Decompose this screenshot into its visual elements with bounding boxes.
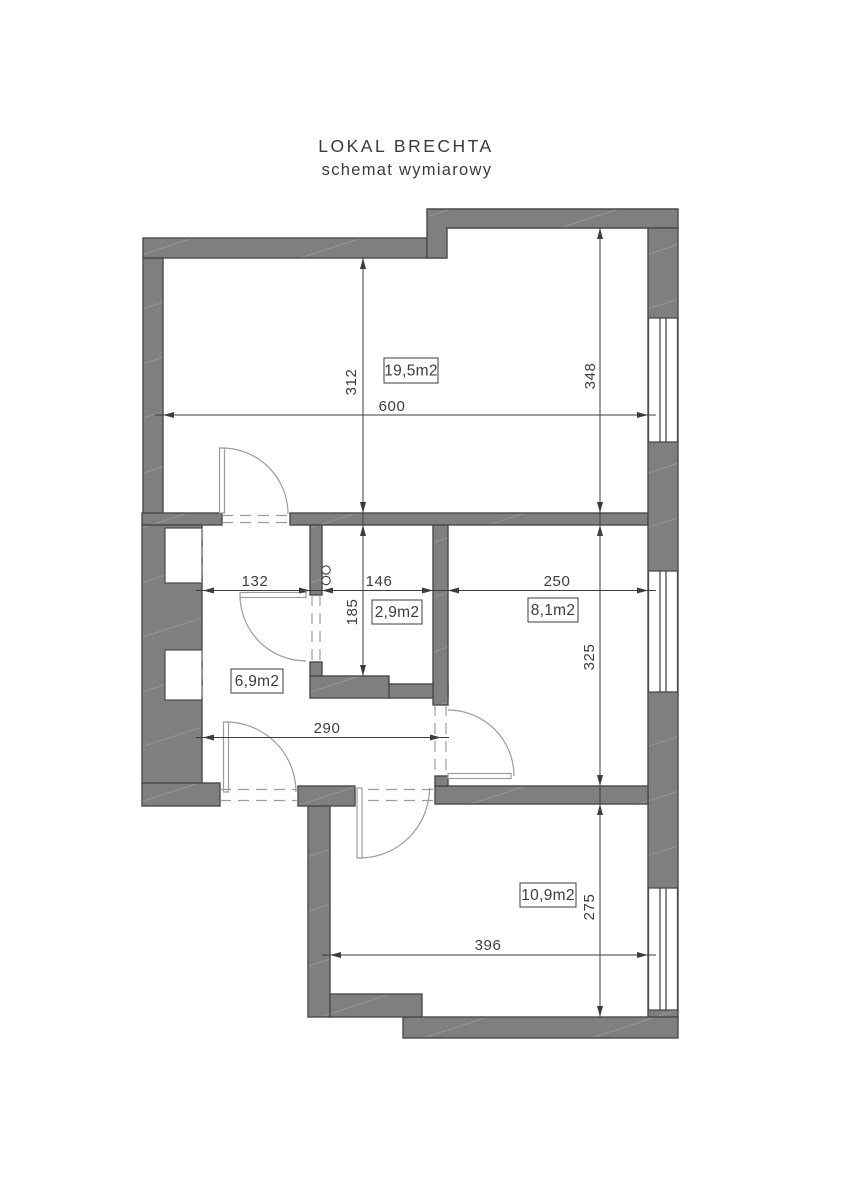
dim-label-275: 275 xyxy=(581,894,598,921)
dim-arrow xyxy=(360,665,366,676)
room-labels-group: 19,5m2 2,9m2 8,1m2 6,9m2 10,9m2 xyxy=(231,358,578,907)
dim-arrow xyxy=(360,525,366,536)
room-area-label-19-5: 19,5m2 xyxy=(384,363,438,380)
wall-segment xyxy=(290,513,648,525)
wall-segment xyxy=(142,783,220,806)
wall-segment xyxy=(143,258,163,513)
wall-segment xyxy=(310,525,322,595)
dim-arrow xyxy=(330,952,341,958)
riser-icon xyxy=(322,566,330,585)
openings-group xyxy=(203,516,447,801)
window xyxy=(649,888,678,1010)
dim-label-325: 325 xyxy=(581,644,598,671)
dim-label-396: 396 xyxy=(475,937,502,954)
room-area-badge: 2,9m2 xyxy=(372,600,422,624)
dim-arrow xyxy=(637,952,648,958)
title-line-2: schemat wymiarowy xyxy=(322,161,493,179)
wall-segment xyxy=(308,806,330,1017)
wall-segment xyxy=(298,786,355,806)
door-swing-arc xyxy=(448,710,514,776)
dim-label-185: 185 xyxy=(344,599,361,626)
dim-arrow xyxy=(430,735,441,741)
dimension-labels-group: 600 132 146 250 290 396 312 348 185 325 … xyxy=(242,363,599,954)
dim-arrow xyxy=(203,588,214,594)
dim-arrow xyxy=(360,502,366,513)
door xyxy=(220,448,289,514)
window xyxy=(649,318,678,442)
room-area-badge: 6,9m2 xyxy=(231,669,283,693)
title-line-1: LOKAL BRECHTA xyxy=(318,136,493,156)
dim-label-600: 600 xyxy=(379,398,406,415)
door-swing-arc xyxy=(360,788,430,858)
door xyxy=(448,710,514,779)
windows-group xyxy=(649,318,678,1010)
dim-label-312: 312 xyxy=(343,369,360,396)
dim-arrow xyxy=(360,258,366,269)
room-area-badge: 19,5m2 xyxy=(384,358,438,383)
floor-plan-svg: 600 132 146 250 290 396 312 348 185 325 … xyxy=(0,0,849,1200)
dim-arrow xyxy=(203,735,214,741)
room-area-label-8-1: 8,1m2 xyxy=(531,602,576,619)
dim-arrow xyxy=(597,1006,603,1017)
wall-niche xyxy=(165,528,202,583)
door-swing-arc xyxy=(222,448,288,514)
wall-segment xyxy=(142,513,222,525)
dim-arrow xyxy=(637,588,648,594)
dim-label-250: 250 xyxy=(544,573,571,590)
wall-segment xyxy=(433,525,448,705)
dim-label-290: 290 xyxy=(314,720,341,737)
door xyxy=(357,788,430,858)
wall-segment xyxy=(403,1017,678,1038)
dim-label-348: 348 xyxy=(582,363,599,390)
dim-arrow xyxy=(597,525,603,536)
riser-circle xyxy=(322,576,330,584)
room-area-badge: 10,9m2 xyxy=(520,883,576,907)
wall-segment xyxy=(310,676,389,698)
room-area-badge: 8,1m2 xyxy=(528,598,578,622)
dim-arrow xyxy=(322,588,333,594)
wall-segment xyxy=(143,238,427,258)
dim-label-146: 146 xyxy=(366,573,393,590)
dim-arrow xyxy=(597,804,603,815)
floor-plan-page: 600 132 146 250 290 396 312 348 185 325 … xyxy=(0,0,849,1200)
drawing-title: LOKAL BRECHTA schemat wymiarowy xyxy=(318,136,493,179)
wall-segment xyxy=(435,786,648,804)
dim-arrow xyxy=(597,775,603,786)
door-swing-arc xyxy=(240,595,306,661)
wall-segment xyxy=(330,994,422,1017)
room-area-label-2-9: 2,9m2 xyxy=(375,604,420,621)
room-area-label-10-9: 10,9m2 xyxy=(521,887,575,904)
riser-circle xyxy=(322,566,330,574)
dim-arrow xyxy=(163,412,174,418)
room-area-label-6-9: 6,9m2 xyxy=(235,673,280,690)
door-swing-arc xyxy=(226,722,296,792)
door xyxy=(240,593,306,662)
door xyxy=(224,722,297,792)
dim-arrow xyxy=(637,412,648,418)
window xyxy=(649,571,678,692)
dim-arrow xyxy=(422,588,433,594)
wall-segment xyxy=(427,209,678,258)
dim-arrow xyxy=(448,588,459,594)
dim-arrow xyxy=(597,228,603,239)
wall-segment xyxy=(435,776,448,786)
wall-segment xyxy=(310,662,322,676)
dim-arrow xyxy=(597,502,603,513)
dim-label-132: 132 xyxy=(242,573,269,590)
wall-niche xyxy=(165,650,202,700)
